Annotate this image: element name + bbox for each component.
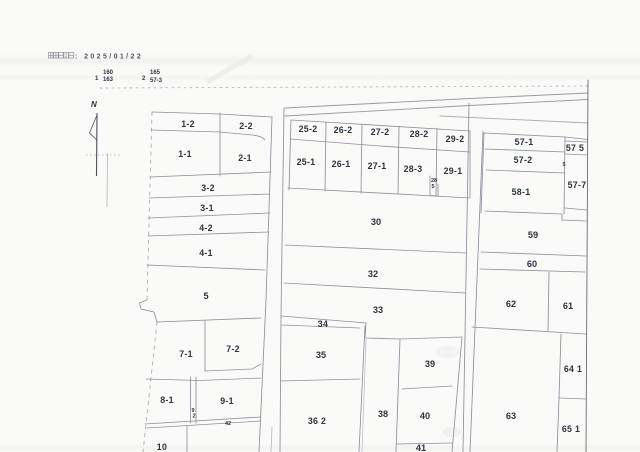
svg-text:25-2: 25-2 [299, 124, 318, 134]
svg-text:63: 63 [506, 411, 516, 421]
svg-text:: 2025/01/22: : 2025/01/22 [75, 54, 143, 61]
svg-text:42: 42 [225, 421, 231, 427]
svg-text:35: 35 [316, 350, 326, 360]
svg-text:57-3: 57-3 [150, 78, 163, 84]
svg-text:26-1: 26-1 [332, 159, 351, 169]
svg-text:5: 5 [562, 162, 565, 168]
svg-text:4-2: 4-2 [199, 223, 213, 233]
svg-text:36 2: 36 2 [308, 416, 326, 426]
svg-text:28-2: 28-2 [410, 129, 429, 139]
svg-text:27-1: 27-1 [368, 161, 387, 171]
svg-text:26-2: 26-2 [334, 125, 353, 135]
svg-text:165: 165 [150, 70, 161, 76]
svg-text:65 1: 65 1 [562, 424, 580, 434]
svg-text:8-1: 8-1 [160, 395, 174, 405]
svg-text:57-1: 57-1 [515, 137, 534, 147]
svg-text:61: 61 [563, 301, 573, 311]
svg-text:57-2: 57-2 [514, 155, 533, 165]
svg-text:3-1: 3-1 [200, 203, 214, 213]
svg-text:59: 59 [528, 230, 538, 240]
svg-text:7-2: 7-2 [226, 344, 240, 354]
svg-text:39: 39 [425, 359, 435, 369]
svg-text:7-1: 7-1 [179, 349, 193, 359]
svg-text:57 5: 57 5 [566, 143, 584, 153]
svg-text:29-1: 29-1 [444, 166, 463, 176]
svg-text:1-2: 1-2 [181, 119, 195, 129]
svg-text:40: 40 [420, 411, 430, 421]
svg-text:4-1: 4-1 [199, 248, 213, 258]
svg-text:38: 38 [378, 409, 388, 419]
svg-text:34: 34 [318, 319, 328, 329]
svg-text:1-1: 1-1 [178, 149, 192, 159]
svg-text:10: 10 [157, 442, 167, 452]
svg-text:30: 30 [371, 217, 381, 227]
svg-text:N: N [91, 100, 97, 109]
svg-text:64 1: 64 1 [564, 364, 582, 374]
svg-text:57-7: 57-7 [568, 180, 587, 190]
svg-text:25-1: 25-1 [297, 157, 316, 167]
svg-text:2: 2 [192, 414, 195, 420]
svg-text:60: 60 [527, 259, 537, 269]
svg-text:58-1: 58-1 [512, 187, 531, 197]
svg-text:3-2: 3-2 [201, 183, 215, 193]
svg-text:62: 62 [506, 299, 516, 309]
svg-text:33: 33 [373, 305, 383, 315]
svg-text:163: 163 [103, 77, 114, 83]
svg-text:160: 160 [103, 70, 114, 76]
svg-text:32: 32 [368, 269, 378, 279]
svg-text:27-2: 27-2 [371, 127, 390, 137]
svg-text:29-2: 29-2 [446, 134, 465, 144]
svg-text:28-3: 28-3 [404, 164, 423, 174]
svg-text:2-2: 2-2 [239, 121, 253, 131]
svg-text:5: 5 [431, 184, 434, 190]
svg-text:9-1: 9-1 [220, 396, 234, 406]
svg-text:5: 5 [203, 291, 208, 301]
svg-text:2-1: 2-1 [238, 153, 252, 163]
svg-text:41: 41 [416, 443, 426, 452]
